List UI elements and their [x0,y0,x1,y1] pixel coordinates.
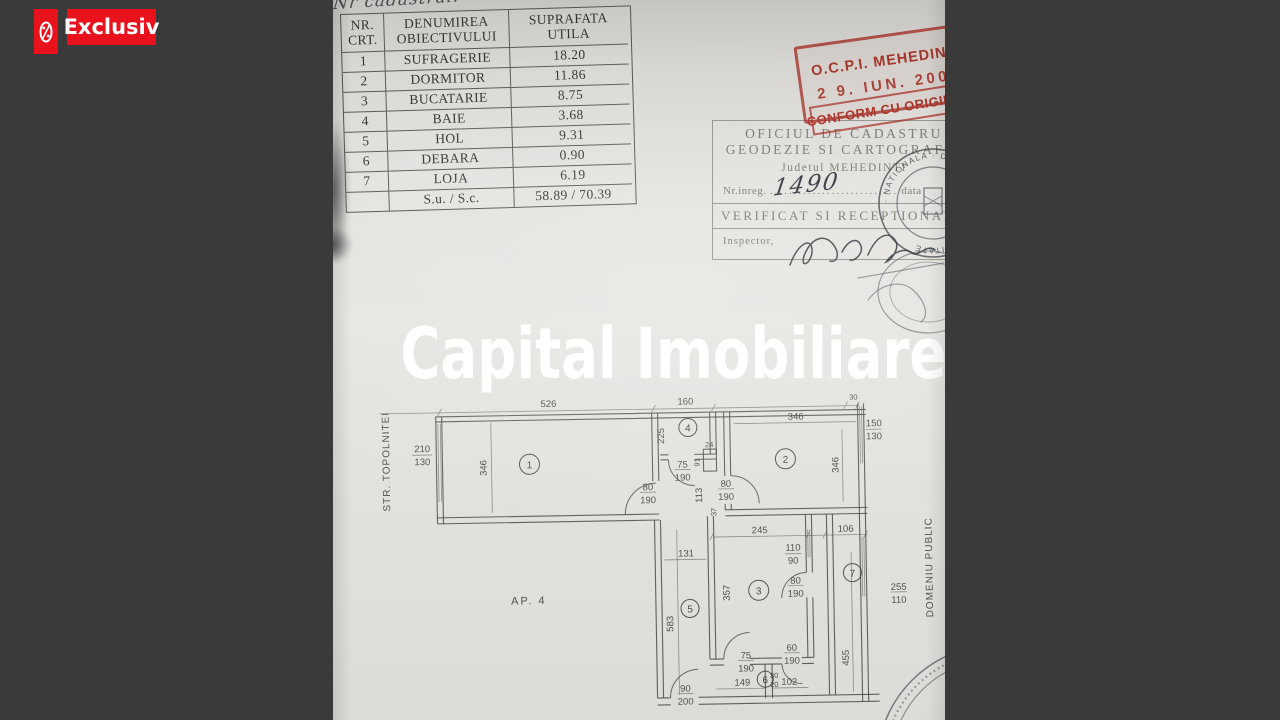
apartment-label: AP. 4 [511,595,547,608]
svg-text:190: 190 [675,472,691,483]
svg-text:455: 455 [841,650,852,666]
agency-logo-tile [34,9,58,54]
svg-text:190: 190 [788,588,804,599]
svg-text:255: 255 [891,582,907,593]
svg-text:131: 131 [678,548,694,559]
svg-text:190: 190 [640,495,656,506]
svg-text:149: 149 [734,677,750,688]
svg-text:346: 346 [788,411,804,422]
svg-text:110: 110 [891,595,906,606]
svg-text:80: 80 [790,576,801,587]
svg-text:75: 75 [677,460,688,471]
svg-text:346: 346 [478,460,489,476]
svg-text:583: 583 [665,616,676,632]
svg-text:245: 245 [752,525,768,536]
svg-text:130: 130 [414,457,430,468]
svg-text:90: 90 [788,556,799,567]
svg-text:80: 80 [720,479,731,490]
watermark-text: Capital Imobiliare [400,311,877,397]
percent-oval-icon [39,19,53,45]
street-label: STR. TOPOLNITEI [381,412,394,512]
svg-text:60: 60 [786,643,797,654]
svg-text:91: 91 [692,458,701,466]
exclusiv-badge: Exclusiv [67,9,156,45]
plan-doors [624,457,808,698]
svg-text:3: 3 [756,586,762,597]
svg-text:200: 200 [678,696,694,707]
svg-text:526: 526 [540,399,556,410]
photo-stage: Nr cadastral: - 312/2/1-14 NR.CRT. DENUM… [0,0,1280,720]
svg-text:190: 190 [738,663,754,674]
round-seal-stamp: · NATIONALA · DE CADASTRU · PUBLICITATE [878,149,945,333]
corner-stamp-arc [877,645,945,720]
svg-text:190: 190 [718,492,734,503]
scanned-document: Nr cadastral: - 312/2/1-14 NR.CRT. DENUM… [333,0,945,720]
svg-text:102: 102 [781,677,797,688]
public-domain-label: DOMENIU PUBLIC [923,517,936,617]
plan-walls [436,403,880,709]
svg-text:113: 113 [694,488,705,503]
svg-text:130: 130 [866,431,882,442]
svg-text:4: 4 [685,423,691,434]
svg-text:2: 2 [783,455,789,466]
svg-text:80: 80 [770,671,778,680]
svg-text:357: 357 [722,585,733,601]
svg-text:37: 37 [709,508,718,516]
svg-text:24: 24 [705,440,713,449]
svg-text:160: 160 [677,396,693,407]
svg-text:90: 90 [680,683,691,694]
svg-text:150: 150 [866,418,882,429]
svg-text:190: 190 [784,656,800,667]
svg-text:5: 5 [687,604,693,615]
svg-text:110: 110 [785,543,800,554]
svg-text:7: 7 [850,569,856,580]
svg-text:106: 106 [838,524,854,535]
svg-text:1: 1 [527,460,533,471]
svg-text:6: 6 [762,675,768,686]
svg-text:80: 80 [643,482,654,493]
svg-text:75: 75 [740,650,751,661]
svg-text:210: 210 [414,444,430,455]
svg-text:346: 346 [830,457,841,473]
svg-text:225: 225 [656,428,667,444]
